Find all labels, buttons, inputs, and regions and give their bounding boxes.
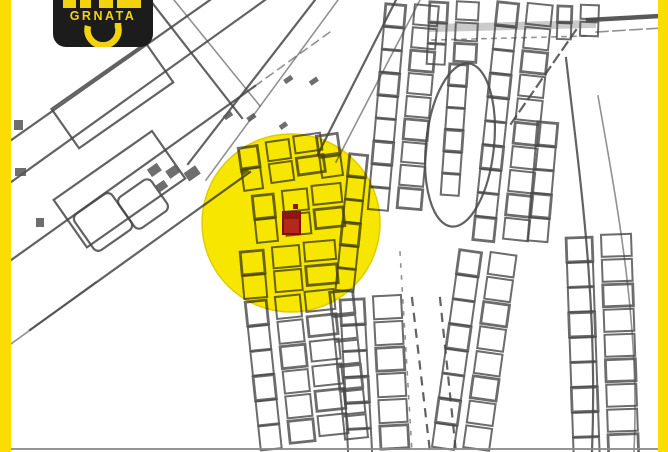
logo-cut-arabic-text xyxy=(117,0,141,8)
cadastral-map xyxy=(0,0,668,452)
logo-cut-arabic-text xyxy=(80,0,91,8)
listing-map-image: GRNATA xyxy=(0,0,668,452)
logo-cut-arabic-text xyxy=(99,0,113,8)
grnata-logo-badge: GRNATA xyxy=(53,0,153,47)
yellow-frame-left xyxy=(0,0,11,452)
yellow-frame-right xyxy=(658,0,668,452)
logo-cut-arabic-text xyxy=(63,0,76,8)
smile-icon xyxy=(83,22,123,47)
logo-brand-text: GRNATA xyxy=(53,9,153,23)
